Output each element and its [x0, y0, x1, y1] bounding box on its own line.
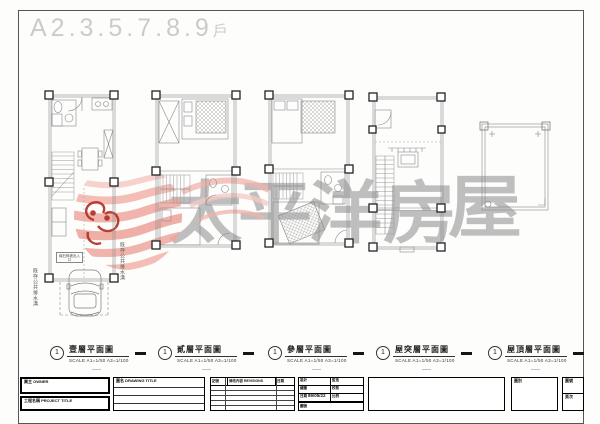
plan1-annotation-right: 既存公共排水溝 [119, 242, 124, 281]
plan-4-roof-penthouse [362, 90, 448, 256]
plan-2-leader-dash [243, 352, 254, 355]
plan-1-caption: 1 壹層平面圖 SCALE A1=1/50 A3=1/100 [50, 344, 146, 363]
plan-1-title: 壹層平面圖 [67, 344, 129, 357]
drawing-sheet: A2.3.5.7.8.9戶 太 平 洋 房 屋 [0, 0, 600, 424]
plan-5-caption: 1 屋頂層平面圖 SCALE A1=1/50 A3=1/100 [488, 344, 584, 363]
plan-3-scale: SCALE A1=1/50 A3=1/100 [285, 357, 347, 363]
fold-tick [202, 369, 211, 370]
revision-date-label: 日期 [276, 378, 294, 385]
owner-label: 業主 OWNER [22, 379, 108, 384]
divider [114, 395, 204, 396]
titleblock-info-grid: 設計 監造 繪圖 校核 日期 89/05/22 比例 圖號 [298, 377, 364, 411]
divider [276, 378, 277, 410]
sheet-title: A2.3.5.7.8.9戶 [30, 14, 228, 43]
plan-3-caption: 1 參層平面圖 SCALE A1=1/50 A3=1/100 [268, 344, 364, 363]
titleblock-revision-box: 記號 修改內容 REVISIONS 日期 [210, 377, 295, 411]
divider [225, 378, 226, 410]
plan-4-caption: 1 屋突層平面圖 SCALE A1=1/50 A3=1/100 [376, 344, 472, 363]
plan-3-ref-bubble: 1 [268, 346, 282, 360]
plan-2-scale: SCALE A1=1/50 A3=1/100 [175, 357, 237, 363]
fold-tick [531, 369, 540, 370]
supervise-label: 監造 [331, 378, 363, 386]
plan-3-title: 參層平面圖 [285, 344, 347, 357]
titleblock-sheet-box: 圖號 頁次 [562, 377, 584, 411]
car-top-view [67, 270, 103, 316]
divider [211, 390, 294, 391]
plan-1-ref-bubble: 1 [50, 346, 64, 360]
plan-4-ref-bubble: 1 [376, 346, 390, 360]
scale-label: 比例 [331, 394, 363, 402]
plan1-curb-note: 緣石斜坡出入口 [56, 252, 83, 263]
divider [114, 387, 204, 388]
plan-5-leader-dash [573, 352, 584, 355]
fold-tick [312, 369, 321, 370]
revision-content-label: 修改內容 REVISIONS [228, 378, 276, 385]
project-label: 工程名稱 PROJECT TITLE [22, 398, 108, 403]
titleblock-category-box: 圖別 [511, 377, 558, 411]
plan-5-roof-plan [477, 118, 553, 216]
titleblock-drawing-title-box: 圖名 DRAWING TITLE [113, 377, 205, 411]
plan-4-leader-dash [461, 352, 472, 355]
titleblock-signature-box [368, 377, 505, 411]
plan-4-title: 屋突層平面圖 [393, 344, 455, 357]
category-label: 圖別 [512, 378, 557, 383]
plan-2-ref-bubble: 1 [158, 346, 172, 360]
plan-2-second-floor [150, 90, 242, 258]
dwg-no-label: 圖號 [299, 402, 363, 410]
plan-1-scale: SCALE A1=1/50 A3=1/100 [67, 357, 129, 363]
sheet-title-text: A2.3.5.7.8.9 [30, 14, 213, 42]
divider [211, 400, 294, 401]
plan-5-title: 屋頂層平面圖 [505, 344, 567, 357]
plan-5-ref-bubble: 1 [488, 346, 502, 360]
divider [211, 395, 294, 396]
plan-1-first-floor [38, 88, 122, 320]
sheet-title-suffix: 戶 [213, 23, 228, 40]
divider [211, 405, 294, 406]
plan-1-leader-dash [135, 352, 146, 355]
page-no-label: 頁次 [563, 394, 583, 399]
drawing-title-label: 圖名 DRAWING TITLE [114, 378, 204, 383]
divider [114, 403, 204, 404]
plan-3-leader-dash [353, 352, 364, 355]
checked-label: 校核 [331, 386, 363, 394]
plan-3-third-floor [263, 90, 355, 254]
plan-5-scale: SCALE A1=1/50 A3=1/100 [505, 357, 567, 363]
sheet-no-label: 圖號 [563, 378, 583, 383]
date-value: 89/05/22 [308, 394, 326, 398]
drawn-label: 繪圖 [299, 386, 331, 394]
titleblock-project-box: 工程名稱 PROJECT TITLE [20, 396, 110, 411]
date-label: 日期 [300, 394, 307, 398]
fold-tick [422, 369, 431, 370]
plan-2-caption: 1 貳層平面圖 SCALE A1=1/50 A3=1/100 [158, 344, 254, 363]
plan-2-title: 貳層平面圖 [175, 344, 237, 357]
fold-tick [92, 369, 101, 370]
design-label: 設計 [299, 378, 331, 386]
plan1-annotation-left: 既存公共排水溝 [32, 268, 37, 307]
plan-4-scale: SCALE A1=1/50 A3=1/100 [393, 357, 455, 363]
titleblock-owner-box: 業主 OWNER [20, 377, 110, 394]
